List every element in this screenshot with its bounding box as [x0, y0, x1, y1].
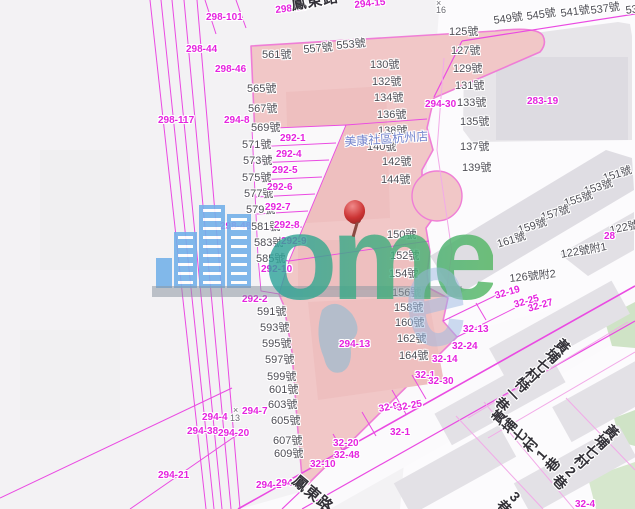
house-number-label: 601號: [269, 385, 298, 396]
house-number-label: 156號: [392, 288, 421, 299]
parcel-code-label: 292-5: [272, 166, 298, 176]
parcel-code-label: 294-30: [425, 100, 456, 110]
house-number-label: 607號: [273, 436, 302, 447]
house-number-label: 603號: [268, 400, 297, 411]
parcel-code-label: 292-2: [242, 295, 268, 305]
house-number-label: 593號: [260, 323, 289, 334]
parcel-code-label: 32-24: [452, 342, 478, 352]
parcel-code-label: 28: [604, 232, 615, 242]
parcel-code-label: 294-20: [218, 429, 249, 439]
house-number-label: 573號: [243, 156, 272, 167]
house-number-label: 127號: [451, 46, 480, 57]
parcel-code-label: 294-21: [158, 471, 189, 481]
house-number-label: 125號: [449, 27, 478, 38]
house-number-label: 597號: [265, 355, 294, 366]
parcel-code-label: 292-1: [280, 134, 306, 144]
house-number-label: 553號: [336, 38, 366, 52]
house-number-label: 133號: [457, 98, 486, 109]
road-name-label: 黃埔七村特一巷: [493, 336, 573, 414]
road-name-label: 黃埔七村1巷: [489, 407, 562, 475]
house-number-label: 569號: [251, 123, 280, 134]
house-number-label: 126號附2: [509, 269, 556, 285]
house-number-label: 160號: [395, 318, 424, 329]
house-number-label: 591號: [257, 307, 286, 318]
parcel-code-label: 294-7: [242, 407, 268, 417]
house-number-label: 164號: [399, 351, 428, 362]
house-number-label: 131號: [455, 81, 484, 92]
road-name-label: 鳳東路: [290, 0, 340, 13]
road-name-label: 黃埔七村2巷: [550, 422, 622, 492]
house-number-label: 144號: [381, 175, 410, 186]
house-number-label: 162號: [397, 334, 426, 345]
house-number-label: 150號: [387, 230, 416, 241]
parcel-code-label: 32-10: [310, 460, 336, 470]
road-name-label: 鳳東路: [289, 473, 335, 509]
house-number-label: 53: [625, 4, 635, 17]
parcel-code-label: 292-9: [281, 237, 307, 247]
parcel-code-label: 298-48: [220, 222, 251, 232]
road-name-label: 3巷: [494, 486, 525, 509]
parcel-code-label: 292-10: [261, 265, 292, 275]
parcel-code-label: 298-117: [158, 116, 194, 126]
house-number-label: 129號: [453, 64, 482, 75]
parcel-code-label: 292-8: [274, 221, 300, 231]
house-number-label: 137號: [460, 142, 489, 153]
parcel-code-label: 32-4: [575, 500, 595, 509]
parcel-code-label: 294-8: [224, 116, 250, 126]
parcel-code-label: 298-46: [215, 65, 246, 75]
parcel-code-label: 294-38: [187, 427, 218, 437]
house-number-label: 571號: [242, 140, 271, 151]
survey-mark-label: 13: [230, 414, 240, 423]
parcel-code-label: 292-6: [267, 183, 293, 193]
parcel-code-label: 294-4: [202, 413, 228, 423]
house-number-label: 561號: [262, 50, 291, 61]
house-number-label: 136號: [377, 110, 406, 121]
parcel-code-label: 32-20: [333, 439, 359, 449]
parcel-code-label: 32-25: [396, 400, 423, 414]
house-number-label: 132號: [372, 77, 401, 88]
house-number-label: 134號: [374, 93, 403, 104]
house-number-label: 139號: [462, 163, 491, 174]
house-number-label: 609號: [274, 449, 303, 460]
house-number-label: 541號: [560, 5, 591, 20]
house-number-label: 567號: [248, 104, 277, 115]
parcel-code-label: 32-14: [432, 355, 458, 365]
house-number-label: 583號: [254, 238, 283, 249]
parcel-code-label: 32-48: [334, 451, 360, 461]
house-number-label: 557號: [303, 42, 333, 56]
house-number-label: 605號: [271, 416, 300, 427]
parcel-code-label: 298-101: [206, 13, 243, 23]
survey-mark-label: 16: [436, 6, 446, 15]
house-number-label: 545號: [526, 8, 557, 23]
parcel-code-label: 298-44: [186, 45, 217, 55]
parcel-code-label: 292-7: [265, 203, 291, 213]
house-number-label: 158號: [394, 303, 423, 314]
house-number-label: 565號: [247, 84, 276, 95]
house-number-label: 152號: [390, 251, 419, 262]
house-number-label: 161號: [496, 231, 527, 250]
house-number-label: 130號: [370, 60, 399, 71]
house-number-label: 599號: [267, 372, 296, 383]
parcel-code-label: 283-19: [527, 97, 558, 107]
map-labels-layer: 561號557號553號565號567號569號571號573號575號577號…: [0, 0, 635, 509]
map-canvas[interactable]: 561號557號553號565號567號569號571號573號575號577號…: [0, 0, 635, 509]
house-number-label: 537號: [590, 2, 621, 17]
poi-label: 美康社區杭州店: [344, 130, 429, 148]
house-number-label: 154號: [389, 269, 418, 280]
parcel-code-label: 292-4: [276, 150, 302, 160]
parcel-code-label: 32-30: [428, 377, 454, 387]
parcel-code-label: 32-13: [463, 325, 489, 335]
house-number-label: 135號: [460, 117, 489, 128]
house-number-label: 122號附1: [560, 242, 608, 261]
parcel-code-label: 32-1: [390, 428, 410, 438]
parcel-code-label: 294-13: [339, 340, 370, 350]
house-number-label: 142號: [382, 157, 411, 168]
parcel-code-label: 294-15: [354, 0, 386, 11]
house-number-label: 549號: [493, 12, 524, 27]
house-number-label: 595號: [262, 339, 291, 350]
